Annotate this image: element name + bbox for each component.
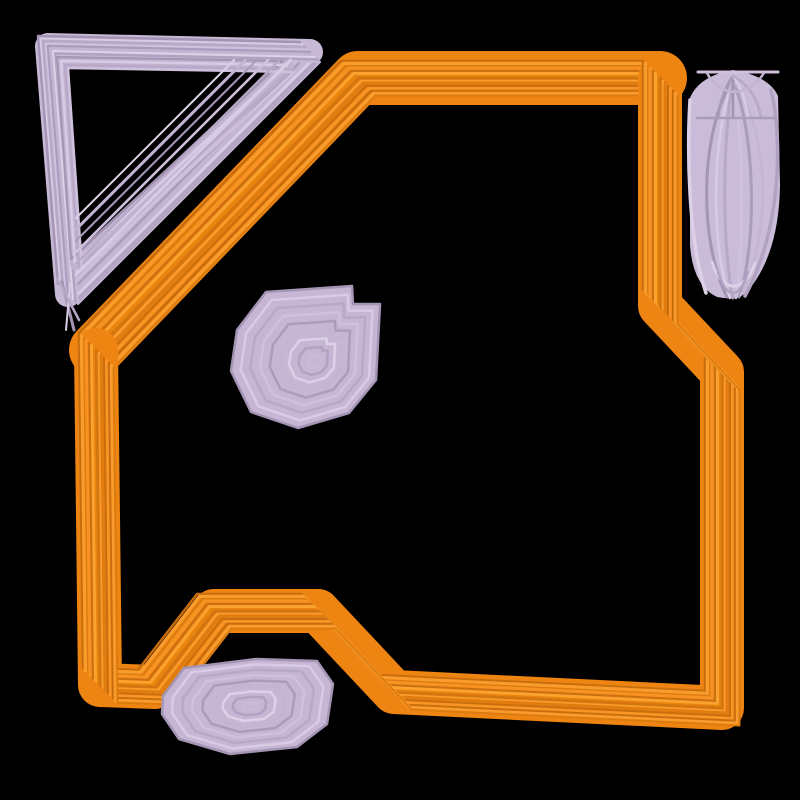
spiral-pentagon-blob <box>231 286 380 428</box>
abstract-drawing-canvas <box>0 0 800 800</box>
drawing-stage <box>0 0 800 800</box>
shuttlecock-pill <box>689 70 780 298</box>
bottom-concentric-blob <box>162 659 333 754</box>
